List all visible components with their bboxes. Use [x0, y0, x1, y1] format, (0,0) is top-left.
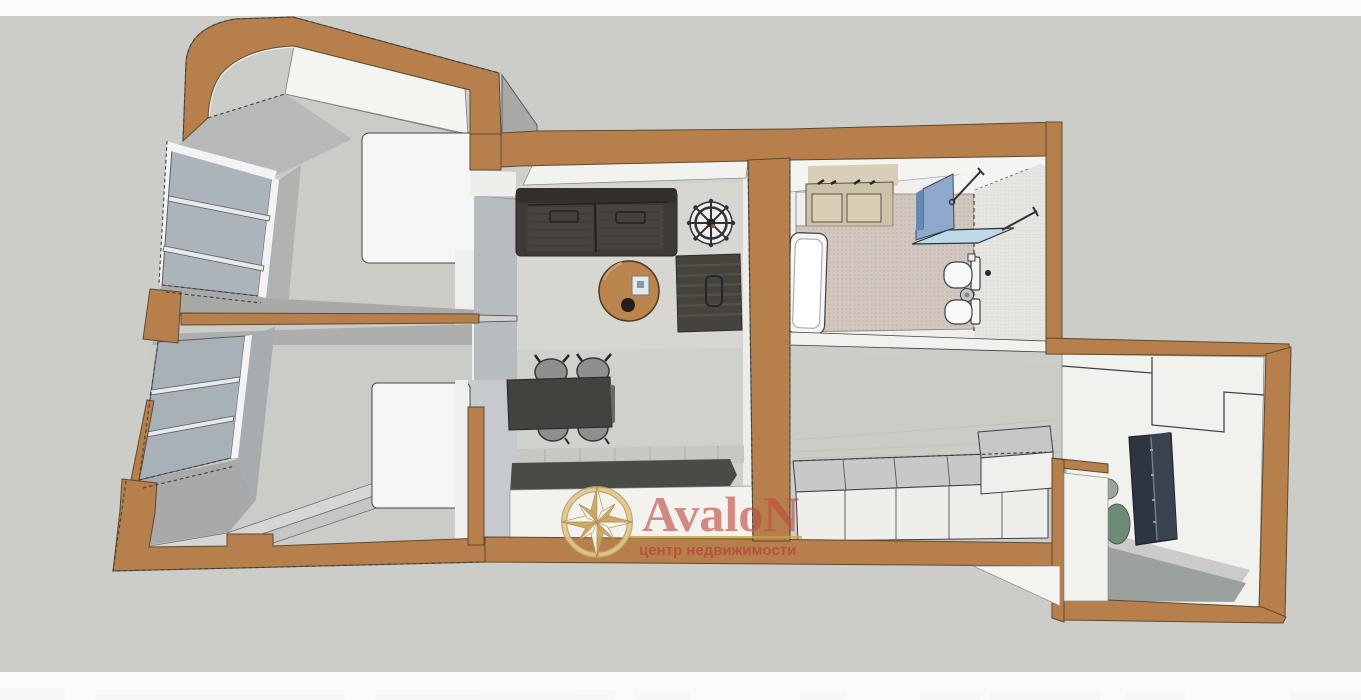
svg-text:центр недвижимости: центр недвижимости — [639, 542, 796, 559]
svg-text:AvaloN: AvaloN — [642, 486, 799, 542]
